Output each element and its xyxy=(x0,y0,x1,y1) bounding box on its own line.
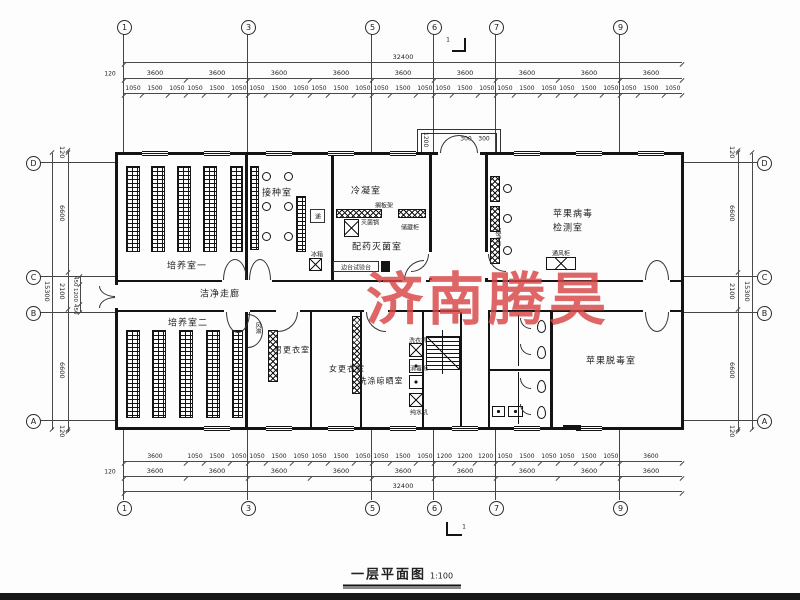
sink xyxy=(492,406,505,417)
dim-value: 1200 xyxy=(475,453,496,461)
dim-value: 3600 xyxy=(496,69,558,78)
stair-arrow xyxy=(442,330,443,374)
stool xyxy=(284,172,293,181)
stair-break-line xyxy=(426,336,460,370)
floor-plan-drawing: 1 3 5 6 7 9 1 3 5 6 7 9 D C B A D C B A … xyxy=(0,0,800,600)
dim-value: 1050 xyxy=(478,85,496,93)
axis-bubble-left: D xyxy=(26,156,41,171)
water-machine-label: 纯水机 xyxy=(410,408,428,417)
room-label-virus-test: 检测室 xyxy=(553,221,583,234)
dim-value: 3600 xyxy=(124,467,186,476)
axis-bubble-right: D xyxy=(757,156,772,171)
dim-value: 3600 xyxy=(558,69,620,78)
dim-value: 15300 xyxy=(42,153,52,430)
bottom-bar xyxy=(0,593,800,600)
dim-value: 1500 xyxy=(576,453,602,461)
dim-value: 1500 xyxy=(204,453,230,461)
dim-value: 1200 xyxy=(455,453,476,461)
stool xyxy=(284,202,293,211)
dim-main-left: 120660021006600120 xyxy=(56,151,69,432)
dim-value: 1500 xyxy=(266,85,292,93)
window xyxy=(266,426,292,431)
door-opening xyxy=(643,280,670,282)
dim-value: 1050 xyxy=(186,85,204,93)
dim-value: 1500 xyxy=(390,453,416,461)
axis-bubble-top: 3 xyxy=(241,20,256,35)
window xyxy=(328,426,354,431)
clean-bench xyxy=(490,176,500,202)
culture-rack xyxy=(232,330,243,418)
dim-value: 1500 xyxy=(514,453,540,461)
dim-value: 6600 xyxy=(726,310,738,429)
axis-bubble-left: A xyxy=(26,414,41,429)
entrance-width-dim: 300 xyxy=(460,136,471,143)
culture-rack xyxy=(177,166,191,252)
axis-bubble-left: B xyxy=(26,306,41,321)
stool xyxy=(503,214,512,223)
axis-bubble-left: C xyxy=(26,270,41,285)
dim-value: 3600 xyxy=(434,69,496,78)
axis-bubble-bottom: 1 xyxy=(117,501,132,516)
axis-bubble-right: C xyxy=(757,270,772,285)
dim-main-right: 120660021006600120 xyxy=(726,151,739,432)
dim-value: 1500 xyxy=(514,85,540,93)
dim-overall-left: 15300 xyxy=(42,153,53,430)
room-label-inoculation: 接种室 xyxy=(262,186,292,199)
entrance-depth-dim: 1200 xyxy=(422,132,429,147)
stool xyxy=(262,172,271,181)
dim-value: 120 xyxy=(56,430,68,432)
section-mark-label-top: 1 xyxy=(446,37,450,44)
axis-bubble-right: B xyxy=(757,306,772,321)
axis-bubble-bottom: 9 xyxy=(613,501,628,516)
culture-rack xyxy=(152,330,166,418)
dim-value: 1050 xyxy=(186,453,204,461)
dim-value: 1050 xyxy=(310,85,328,93)
fridge-box xyxy=(309,258,322,271)
dim-value: 3600 xyxy=(620,69,682,78)
wall-interior xyxy=(245,155,248,282)
axis-bubble-bottom: 7 xyxy=(489,501,504,516)
storage-cabinet xyxy=(398,209,426,218)
dim-value: 450 xyxy=(70,305,80,313)
dim-overall-top: 32400 xyxy=(124,52,682,63)
room-label-detox: 苹果脱毒室 xyxy=(586,354,636,367)
drawing-scale: 1:100 xyxy=(430,572,453,581)
door-arc xyxy=(99,286,115,297)
toilet-fixture xyxy=(537,346,546,359)
inoculation-rack xyxy=(296,196,306,252)
clean-bench-label: 超净台 xyxy=(493,228,502,246)
dim-value: 1050 xyxy=(124,85,142,93)
room-label-culture2: 培养室二 xyxy=(168,316,208,329)
door-arc xyxy=(645,260,657,280)
dim-overall-bottom: 32400 xyxy=(124,481,682,492)
wall-toilet-partition xyxy=(488,369,552,371)
room-label-corridor: 洁净走廊 xyxy=(200,287,240,300)
dim-value: 1050 xyxy=(496,85,514,93)
dim-value: 1050 xyxy=(496,453,514,461)
dim-value: 1500 xyxy=(204,85,230,93)
dim-value: 2100 xyxy=(56,273,68,311)
door-arc xyxy=(99,297,115,308)
dim-value: 120 xyxy=(726,430,738,432)
window xyxy=(266,151,292,156)
axis-bubble-bottom: 3 xyxy=(241,501,256,516)
dim-value: 1050 xyxy=(230,453,248,461)
dim-value: 15300 xyxy=(742,153,752,430)
axis-bubble-top: 7 xyxy=(489,20,504,35)
dim-value: 3600 xyxy=(372,69,434,78)
dim-value: 1050 xyxy=(540,453,558,461)
door-arc xyxy=(520,378,531,389)
window xyxy=(452,426,478,431)
room-label-dispensing: 配药灭菌室 xyxy=(352,240,402,253)
dim-value: 1050 xyxy=(310,453,328,461)
wall-outer-right xyxy=(681,152,684,430)
door-opening xyxy=(115,285,118,308)
section-mark-label-bottom: 1 xyxy=(462,524,466,531)
dim-offset-top-left: 120 xyxy=(104,71,115,78)
window xyxy=(204,151,230,156)
window xyxy=(514,151,540,156)
sterilizer-label: 灭菌锅 xyxy=(361,218,379,227)
dim-value: 3600 xyxy=(620,453,682,461)
culture-rack xyxy=(126,166,140,252)
dim-value: 1050 xyxy=(354,453,372,461)
door-arc xyxy=(278,312,298,332)
dim-value: 6600 xyxy=(56,310,68,429)
dim-value: 3600 xyxy=(310,69,372,78)
dim-value: 1050 xyxy=(372,85,390,93)
dim-value: 3600 xyxy=(186,467,248,476)
dim-value: 1050 xyxy=(558,453,576,461)
door-sill xyxy=(563,425,581,430)
dim-value: 1050 xyxy=(434,85,452,93)
axis-bubble-top: 9 xyxy=(613,20,628,35)
stool xyxy=(284,232,293,241)
culture-rack xyxy=(179,330,193,418)
axis-bubble-right: A xyxy=(757,414,772,429)
dim-value: 1050 xyxy=(602,85,620,93)
axis-bubble-top: 6 xyxy=(427,20,442,35)
inoculation-rack xyxy=(250,166,259,250)
toilet-fixture xyxy=(537,380,546,393)
dim-value: 1200 xyxy=(434,453,455,461)
window xyxy=(142,151,168,156)
dim-value: 1050 xyxy=(230,85,248,93)
dim-windows-bottom: 3600105015001050105015001050105015001050… xyxy=(124,451,682,462)
stool xyxy=(262,202,271,211)
door-arc xyxy=(223,259,235,280)
dim-value: 1050 xyxy=(416,85,434,93)
window xyxy=(328,151,354,156)
room-label-washing: 洗涤晾晒室 xyxy=(359,376,404,387)
dim-value: 1050 xyxy=(292,453,310,461)
locker xyxy=(268,330,278,382)
dim-value: 1200 xyxy=(70,285,80,306)
culture-rack xyxy=(126,330,140,418)
axis-bubble-top: 5 xyxy=(365,20,380,35)
dim-value: 1050 xyxy=(416,453,434,461)
window xyxy=(576,151,602,156)
dim-value: 3600 xyxy=(372,467,434,476)
disinfect-cabinet-label: 消毒柜 xyxy=(410,364,428,373)
dim-value: 3600 xyxy=(248,69,310,78)
dim-value: 1050 xyxy=(248,85,266,93)
drawing-title: 一层平面图 xyxy=(351,568,426,583)
dim-value: 1500 xyxy=(328,453,354,461)
dim-value: 2100 xyxy=(726,273,738,311)
door-arc xyxy=(260,259,271,280)
dim-value: 3600 xyxy=(124,453,186,461)
door-opening xyxy=(222,280,272,282)
title-block: 一层平面图1:100 xyxy=(343,564,461,587)
watermark: 济南腾昊 xyxy=(366,254,610,336)
toilet-fixture xyxy=(537,406,546,419)
dim-value: 3600 xyxy=(496,467,558,476)
section-mark xyxy=(464,38,466,52)
water-machine-box xyxy=(409,393,423,407)
dim-value: 1500 xyxy=(328,85,354,93)
wall-interior xyxy=(310,312,312,427)
dim-value: 1500 xyxy=(390,85,416,93)
door-arc xyxy=(645,312,657,332)
room-label-condensation: 冷凝室 xyxy=(351,184,381,197)
door-arc xyxy=(520,344,531,355)
dim-value: 1050 xyxy=(248,453,266,461)
washer-label: 洗衣机 xyxy=(409,336,427,345)
room-label-women-change: 女更衣室 xyxy=(329,364,365,375)
dim-value: 3600 xyxy=(186,69,248,78)
window xyxy=(204,426,230,431)
dim-value: 1050 xyxy=(620,85,638,93)
washer-box xyxy=(409,375,423,389)
dim-value: 6600 xyxy=(56,153,68,272)
dim-value: 32400 xyxy=(124,482,682,491)
pass-window-label: 递 xyxy=(315,212,321,221)
stool xyxy=(262,232,271,241)
room-label-culture1: 培养室一 xyxy=(167,259,207,272)
dim-value: 3600 xyxy=(248,467,310,476)
dim-overall-right: 15300 xyxy=(742,153,753,430)
dim-value: 3600 xyxy=(310,467,372,476)
dim-value: 6600 xyxy=(726,153,738,272)
window xyxy=(638,151,664,156)
dim-bays-bottom: 360036003600360036003600360036003600 xyxy=(124,466,682,477)
dim-value: 1050 xyxy=(602,453,620,461)
stool xyxy=(503,184,512,193)
door-arc xyxy=(226,312,238,333)
dim-inner-left: 4501200450 xyxy=(70,277,81,313)
fridge-label: 冰箱 xyxy=(311,250,323,259)
dim-value: 1500 xyxy=(638,85,664,93)
washer-box xyxy=(409,343,423,357)
dim-value: 1050 xyxy=(664,85,682,93)
axis-bubble-top: 1 xyxy=(117,20,132,35)
shelf-rack-label: 搁板架 xyxy=(375,201,393,210)
dim-value: 1050 xyxy=(354,85,372,93)
dim-value: 32400 xyxy=(124,53,682,62)
dim-value: 1050 xyxy=(292,85,310,93)
dim-windows-top: 1050150010501050150010501050150010501050… xyxy=(124,83,682,94)
dim-value: 1500 xyxy=(452,85,478,93)
dim-value: 1050 xyxy=(558,85,576,93)
dim-value: 3600 xyxy=(124,69,186,78)
axis-bubble-bottom: 5 xyxy=(365,501,380,516)
dim-value: 1500 xyxy=(142,85,168,93)
dim-value: 3600 xyxy=(558,467,620,476)
section-mark xyxy=(446,534,462,536)
dim-value: 3600 xyxy=(620,467,682,476)
window xyxy=(390,426,416,431)
dim-value: 1050 xyxy=(372,453,390,461)
dim-value: 3600 xyxy=(434,467,496,476)
culture-rack xyxy=(151,166,165,252)
dim-value: 1050 xyxy=(168,85,186,93)
culture-rack xyxy=(230,166,243,252)
air-shower-label: 风淋 xyxy=(253,322,262,334)
room-label-virus-test: 苹果病毒 xyxy=(553,207,593,220)
entrance-width-dim: 300 xyxy=(478,136,489,143)
door-arc xyxy=(249,259,260,280)
dim-bays-top: 360036003600360036003600360036003600 xyxy=(124,68,682,79)
window xyxy=(390,151,416,156)
dim-value: 1050 xyxy=(540,85,558,93)
dim-value: 1500 xyxy=(576,85,602,93)
culture-rack xyxy=(203,166,217,252)
storage-cabinet-label: 储藏柜 xyxy=(401,223,419,232)
axis-bubble-bottom: 6 xyxy=(427,501,442,516)
room-label-men-change: 男更衣室 xyxy=(274,345,310,356)
sterilizer-box xyxy=(344,219,359,237)
door-arc xyxy=(657,312,669,332)
dim-offset-bottom-left: 120 xyxy=(104,469,115,476)
culture-rack xyxy=(206,330,220,418)
dim-value: 1500 xyxy=(266,453,292,461)
window xyxy=(514,426,540,431)
door-arc xyxy=(657,260,669,280)
